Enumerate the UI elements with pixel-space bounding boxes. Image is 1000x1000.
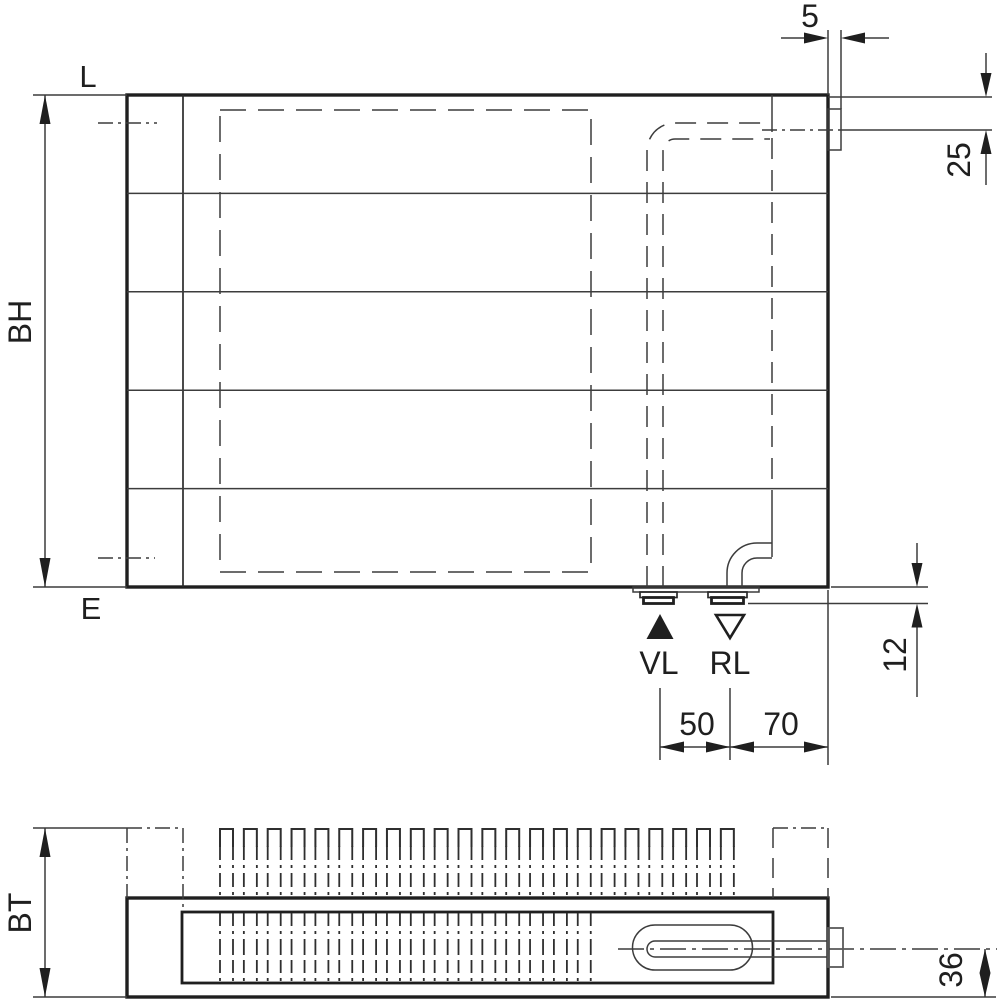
arrow-down-icon	[980, 973, 991, 997]
build-height-label: BH	[2, 300, 38, 344]
dim-top-to-side-connection: 25	[941, 142, 977, 178]
front-outline	[127, 95, 828, 587]
fin-line	[292, 829, 305, 847]
dim-bracket-width: 5	[801, 0, 819, 34]
fin-line	[244, 829, 257, 847]
drawing-canvas: BH L E 5 25 12 VL RL	[0, 0, 1000, 1000]
arrow-right-icon	[804, 742, 828, 753]
arrow-left-icon	[841, 33, 865, 44]
fin-line	[554, 829, 567, 847]
arrow-up-icon	[980, 949, 991, 973]
arrow-down-icon	[981, 73, 992, 97]
top-connection-label: L	[79, 59, 96, 94]
fin-line	[315, 829, 328, 847]
arrow-down-icon	[912, 563, 923, 587]
fin-line	[459, 829, 472, 847]
convector-fins	[220, 829, 734, 983]
arrow-up-icon	[912, 604, 923, 628]
fin-line	[578, 829, 591, 847]
fin-line	[482, 829, 495, 847]
arrow-up-icon	[40, 95, 51, 124]
fin-line	[721, 829, 734, 847]
fin-line	[363, 829, 376, 847]
arrow-up-icon	[40, 828, 51, 857]
fin-line	[530, 829, 543, 847]
front-view	[127, 95, 841, 604]
return-bend-inner	[742, 558, 772, 587]
fin-line	[602, 829, 615, 847]
plan-connection-stub	[828, 928, 843, 967]
return-bend-outer	[727, 543, 772, 587]
fin-line	[625, 829, 638, 847]
return-label: RL	[710, 645, 751, 681]
arrow-left-icon	[660, 742, 684, 753]
arrow-right-icon	[706, 742, 730, 753]
dim-return-to-edge: 70	[763, 706, 799, 742]
arrow-down-icon	[40, 558, 51, 587]
arrow-down-icon	[40, 968, 51, 997]
convector-plate-hidden	[220, 110, 591, 572]
plan-view	[127, 828, 997, 997]
arrow-right-icon	[804, 33, 828, 44]
fin-line	[506, 829, 519, 847]
dim-connection-protrusion: 12	[877, 637, 913, 673]
fin-line	[697, 829, 710, 847]
arrow-left-icon	[730, 742, 754, 753]
water-channel-loop	[633, 925, 753, 970]
fin-line	[339, 829, 352, 847]
fin-line	[411, 829, 424, 847]
supply-riser-pipe-inner	[663, 139, 770, 587]
supply-nipple-body	[644, 598, 674, 604]
radiator-technical-drawing: BH L E 5 25 12 VL RL	[0, 0, 1000, 1000]
supply-label: VL	[639, 645, 678, 681]
return-flow-triangle-icon	[716, 615, 744, 638]
fin-line	[649, 829, 662, 847]
fin-line	[268, 829, 281, 847]
return-nipple-body	[712, 598, 744, 604]
fin-line	[435, 829, 448, 847]
fin-line	[220, 829, 233, 847]
fin-line	[673, 829, 686, 847]
plan-channel	[182, 912, 773, 983]
supply-riser-pipe-outer	[647, 123, 770, 587]
front-view-dimensions: BH L E 5 25 12 VL RL	[2, 0, 992, 765]
fin-line	[387, 829, 400, 847]
dim-pipe-center-to-front: 36	[933, 952, 969, 988]
build-depth-label: BT	[2, 893, 38, 934]
dim-supply-return-spacing: 50	[679, 706, 715, 742]
bottom-connection-label: E	[81, 591, 102, 626]
supply-flow-triangle-icon	[647, 614, 674, 639]
arrow-up-icon	[981, 130, 992, 154]
